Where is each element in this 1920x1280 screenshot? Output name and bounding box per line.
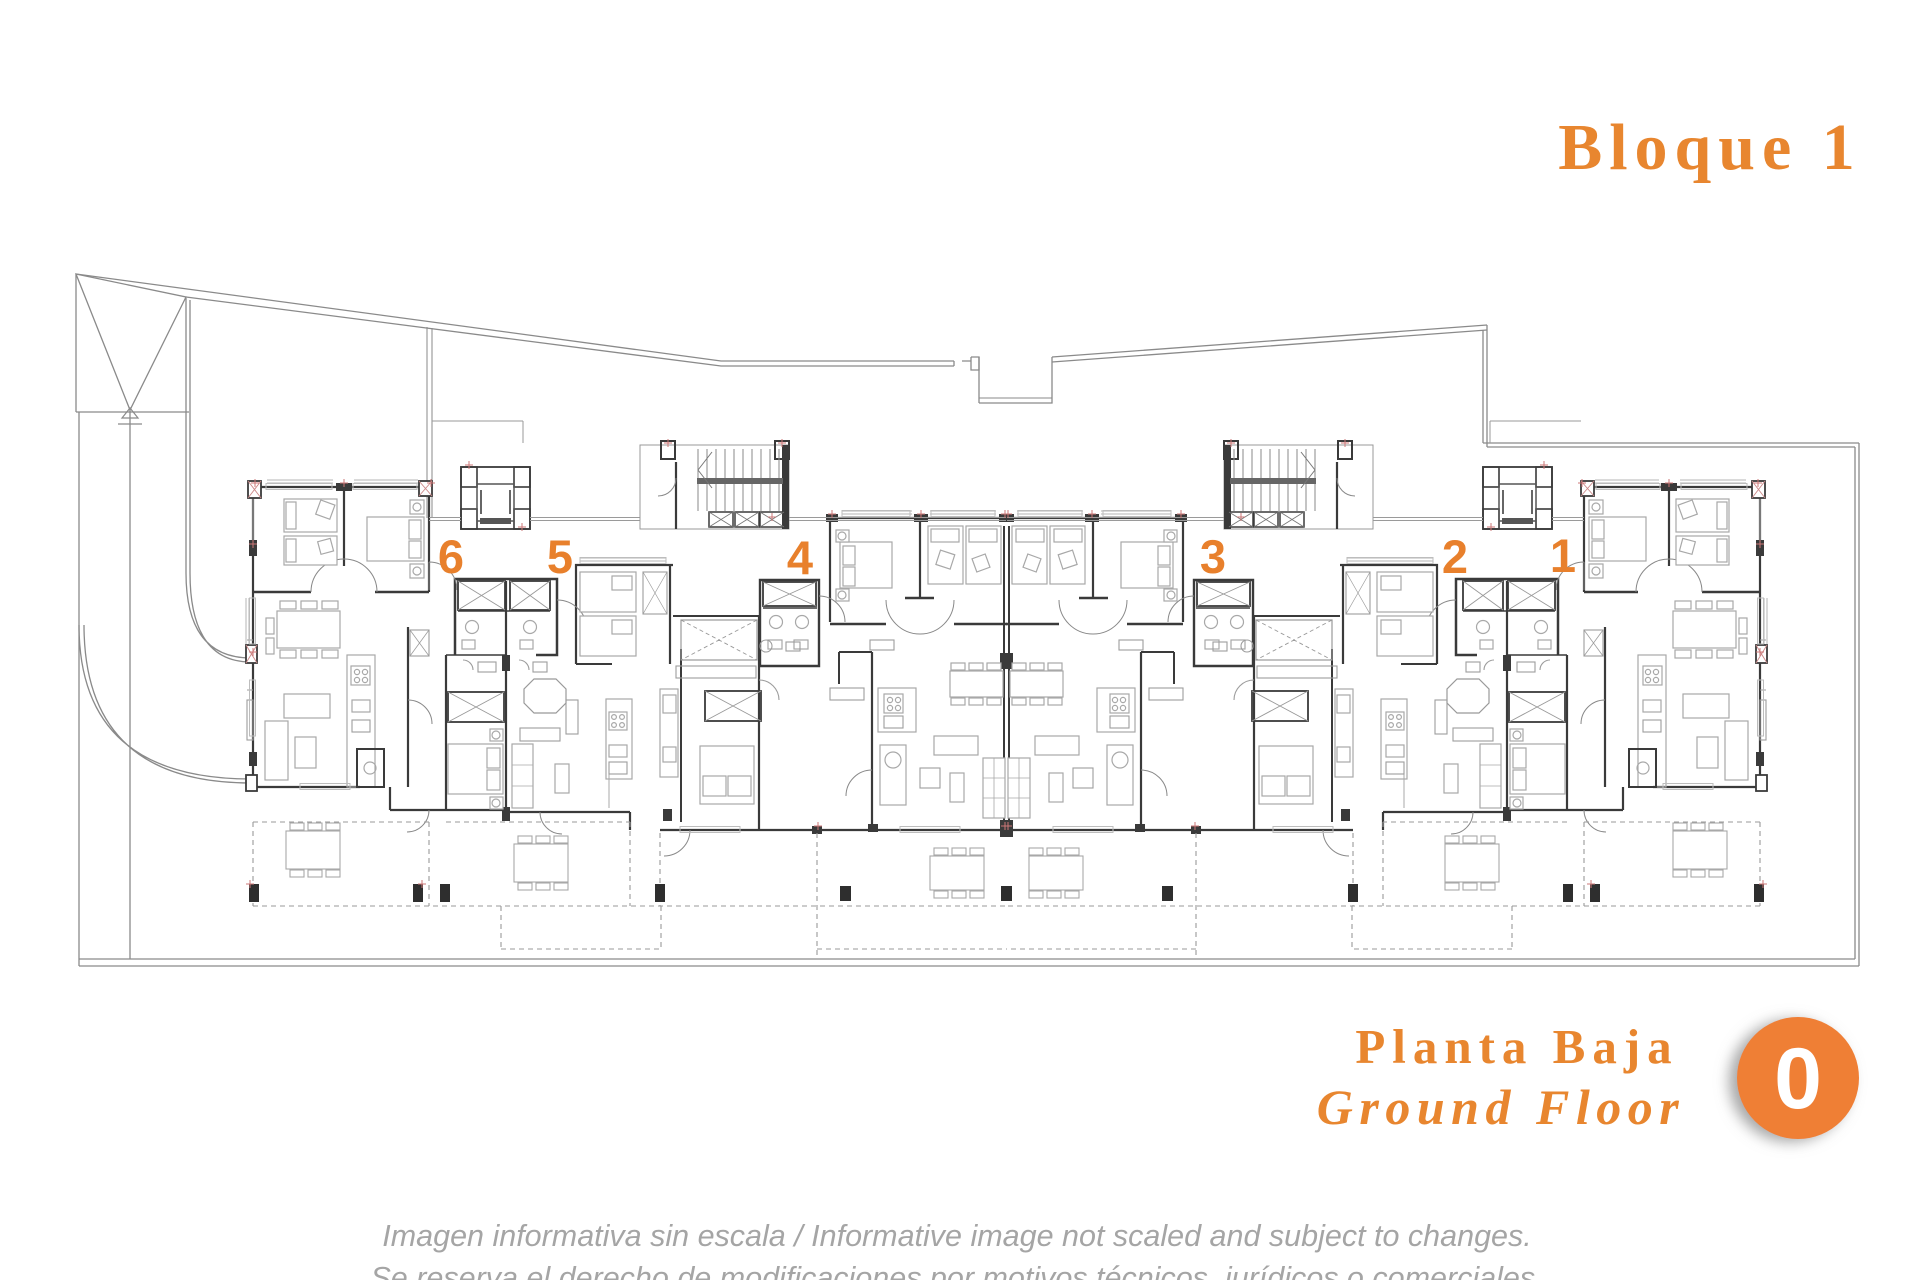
svg-text:3: 3 <box>1200 530 1226 583</box>
svg-text:4: 4 <box>787 531 813 584</box>
svg-text:0: 0 <box>1774 1031 1822 1127</box>
svg-text:5: 5 <box>547 530 573 583</box>
svg-text:6: 6 <box>438 530 464 583</box>
svg-text:Se reserva el derecho de modif: Se reserva el derecho de modificaciones … <box>370 1261 1543 1280</box>
svg-text:Bloque 1: Bloque 1 <box>1558 111 1862 184</box>
svg-text:2: 2 <box>1442 530 1468 583</box>
svg-text:Ground Floor: Ground Floor <box>1317 1079 1685 1135</box>
svg-text:Imagen informativa sin escala: Imagen informativa sin escala / Informat… <box>382 1219 1531 1253</box>
svg-text:Planta Baja: Planta Baja <box>1355 1019 1678 1074</box>
svg-text:1: 1 <box>1550 529 1576 582</box>
